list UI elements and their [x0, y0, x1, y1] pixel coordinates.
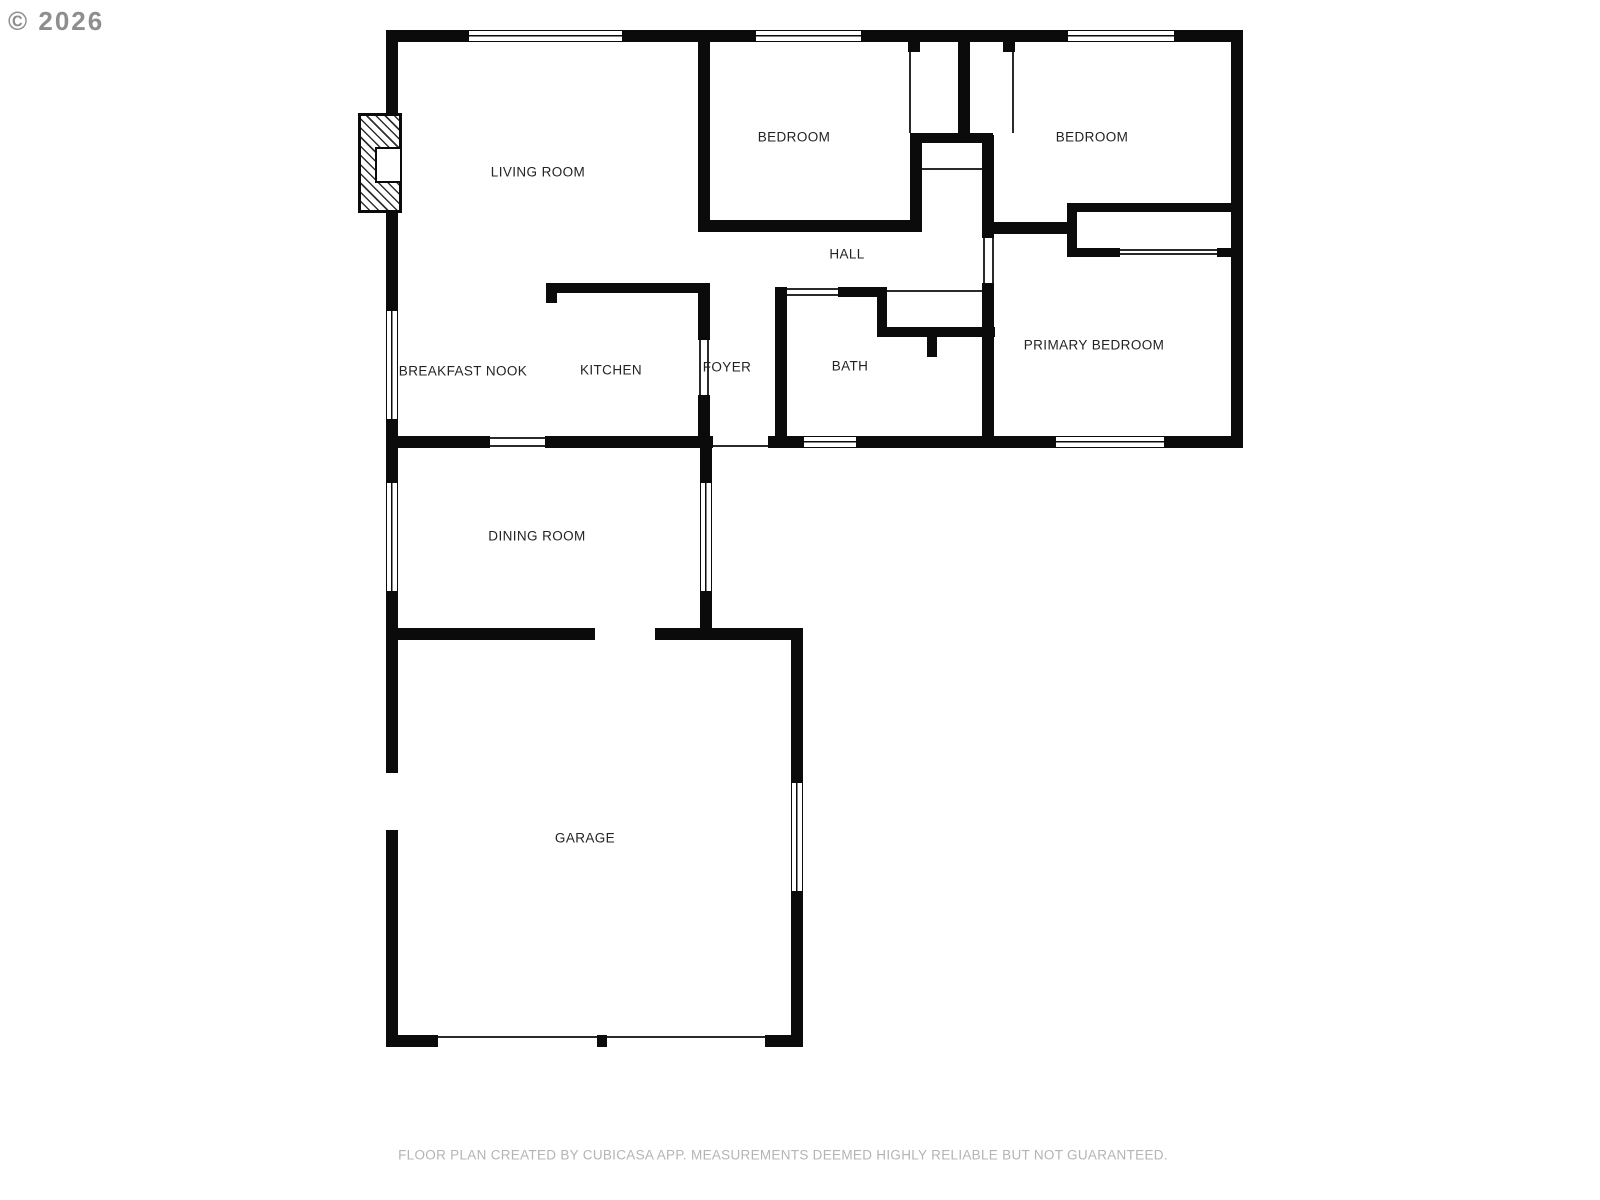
wall — [791, 628, 803, 782]
wall — [862, 30, 1067, 42]
wall — [545, 436, 713, 448]
door-opening-line — [922, 168, 982, 170]
wall — [386, 436, 490, 448]
window — [1067, 30, 1175, 42]
room-label-foyer: FOYER — [703, 360, 752, 375]
room-label-dining-room: DINING ROOM — [488, 529, 585, 544]
door-opening-line — [1120, 249, 1217, 251]
wall — [386, 1035, 438, 1047]
door-opening-line — [1012, 52, 1014, 133]
wall — [655, 628, 803, 640]
wall — [546, 283, 557, 303]
wall — [1231, 30, 1243, 448]
room-label-garage: GARAGE — [555, 831, 615, 846]
wall — [982, 222, 1067, 234]
wall — [597, 1035, 607, 1047]
wall — [386, 592, 398, 773]
door-opening-line — [909, 52, 911, 133]
door-opening-line — [1120, 253, 1217, 255]
wall — [386, 213, 398, 310]
window — [700, 482, 712, 592]
door-opening-line — [713, 445, 768, 447]
door-opening-line — [887, 290, 982, 292]
wall — [1165, 436, 1243, 448]
wall — [838, 287, 887, 297]
wall — [698, 30, 710, 222]
wall — [765, 1035, 803, 1047]
window — [386, 482, 398, 592]
room-label-bedroom-1: BEDROOM — [758, 130, 831, 145]
window — [803, 436, 857, 448]
wall — [386, 628, 595, 640]
wall — [698, 395, 710, 448]
wall — [857, 436, 1055, 448]
wall — [386, 30, 398, 113]
door-opening-line — [490, 437, 545, 439]
wall — [791, 892, 803, 1047]
wall — [927, 337, 937, 357]
firebox — [375, 147, 402, 183]
wall — [775, 287, 787, 436]
wall — [623, 30, 755, 42]
floor-plan: LIVING ROOMBEDROOMBEDROOMHALLBREAKFAST N… — [0, 0, 1600, 1200]
wall — [1067, 248, 1120, 257]
door-opening-line — [992, 238, 994, 283]
window — [1055, 436, 1165, 448]
door-opening-line — [490, 445, 545, 447]
wall — [546, 283, 710, 293]
wall — [910, 133, 922, 232]
wall — [1217, 248, 1231, 257]
room-label-breakfast-nook: BREAKFAST NOOK — [399, 364, 527, 379]
door-opening-line — [787, 288, 838, 290]
window — [755, 30, 862, 42]
door-opening-line — [607, 1036, 765, 1038]
footer-disclaimer: FLOOR PLAN CREATED BY CUBICASA APP. MEAS… — [398, 1148, 1168, 1163]
floor-plan-page: © 2026 LIVING ROOMBEDROOMBEDROOMHALLBREA… — [0, 0, 1600, 1200]
fireplace-chimney — [358, 113, 402, 213]
wall — [698, 293, 710, 340]
wall — [698, 220, 918, 232]
window — [468, 30, 623, 42]
room-label-living-room: LIVING ROOM — [491, 165, 585, 180]
wall — [386, 830, 398, 1047]
window — [791, 782, 803, 892]
room-label-bedroom-2: BEDROOM — [1056, 130, 1129, 145]
wall — [982, 283, 994, 436]
room-label-hall: HALL — [829, 247, 864, 262]
door-opening-line — [699, 340, 701, 395]
window — [386, 310, 398, 420]
door-opening-line — [438, 1036, 597, 1038]
room-label-kitchen: KITCHEN — [580, 363, 642, 378]
wall — [910, 133, 993, 143]
door-opening-line — [983, 238, 985, 283]
wall — [908, 42, 920, 52]
wall — [768, 436, 803, 448]
wall — [386, 420, 398, 482]
room-label-primary-bedroom: PRIMARY BEDROOM — [1024, 338, 1165, 353]
wall — [877, 327, 995, 337]
wall — [1003, 42, 1015, 52]
wall — [958, 42, 970, 142]
room-label-bath: BATH — [832, 359, 869, 374]
door-opening-line — [787, 294, 838, 296]
wall — [386, 30, 468, 42]
wall — [1067, 203, 1243, 212]
